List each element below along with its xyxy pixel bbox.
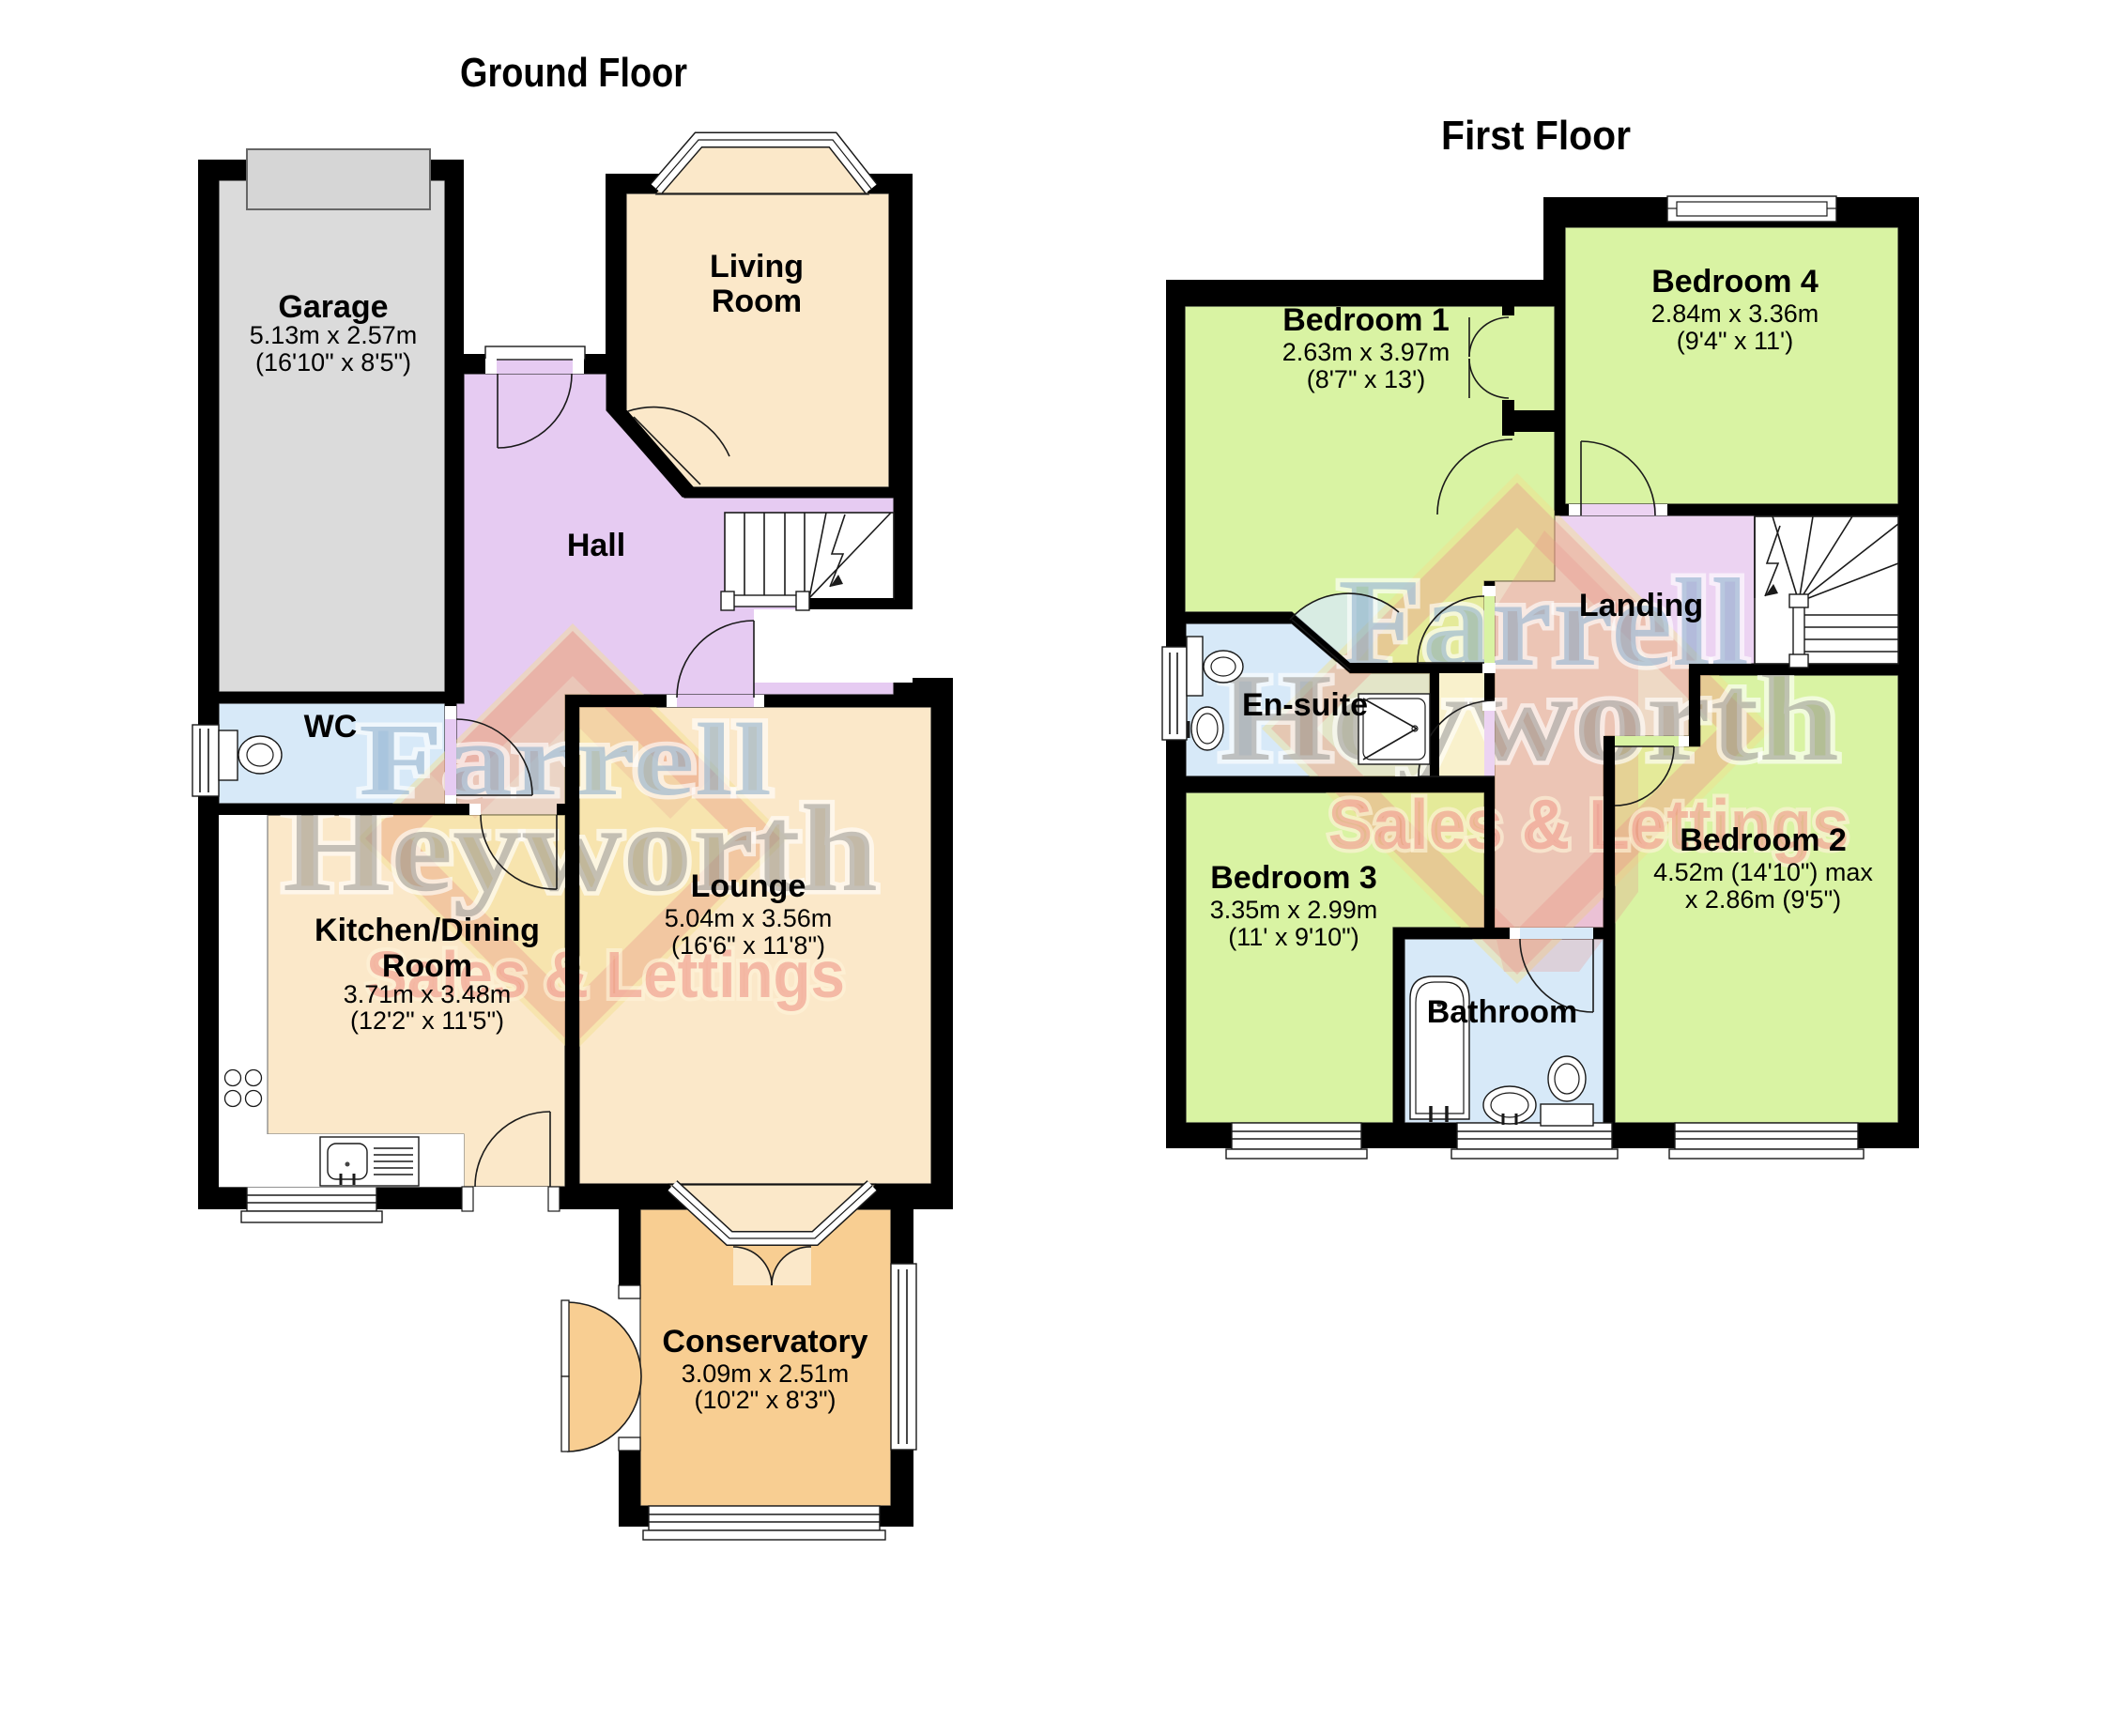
svg-text:En-suite: En-suite — [1242, 687, 1368, 723]
svg-text:Ground Floor: Ground Floor — [460, 50, 687, 96]
svg-text:3.71m x 3.48m: 3.71m x 3.48m — [344, 980, 512, 1008]
svg-text:x 2.86m (9'5"): x 2.86m (9'5") — [1685, 885, 1841, 914]
svg-text:(8'7" x 13'): (8'7" x 13') — [1307, 365, 1425, 393]
svg-text:Living: Living — [710, 249, 804, 284]
svg-text:Bedroom 4: Bedroom 4 — [1651, 264, 1819, 300]
svg-text:4.52m (14'10") max: 4.52m (14'10") max — [1653, 858, 1873, 886]
svg-text:Room: Room — [382, 948, 472, 984]
svg-text:Room: Room — [712, 284, 802, 319]
svg-text:Conservatory: Conservatory — [662, 1324, 867, 1360]
svg-text:Bedroom 1: Bedroom 1 — [1282, 302, 1450, 338]
svg-text:(10'2" x 8'3"): (10'2" x 8'3") — [694, 1386, 836, 1414]
svg-text:Bathroom: Bathroom — [1427, 994, 1578, 1030]
svg-text:3.35m x 2.99m: 3.35m x 2.99m — [1210, 896, 1378, 924]
svg-text:Landing: Landing — [1579, 588, 1703, 623]
svg-text:2.84m x 3.36m: 2.84m x 3.36m — [1651, 300, 1819, 328]
svg-text:First Floor: First Floor — [1441, 113, 1631, 159]
svg-text:Lounge: Lounge — [691, 868, 806, 904]
svg-text:Garage: Garage — [278, 289, 388, 325]
svg-text:5.13m x 2.57m: 5.13m x 2.57m — [250, 321, 418, 349]
svg-text:2.63m x 3.97m: 2.63m x 3.97m — [1282, 338, 1450, 366]
svg-text:(11' x 9'10"): (11' x 9'10") — [1228, 923, 1358, 951]
svg-text:3.09m x 2.51m: 3.09m x 2.51m — [682, 1360, 850, 1388]
svg-text:Hall: Hall — [567, 528, 625, 563]
svg-text:(16'10" x 8'5"): (16'10" x 8'5") — [255, 348, 411, 376]
svg-text:(9'4" x 11'): (9'4" x 11') — [1677, 327, 1793, 355]
svg-text:Kitchen/Dining: Kitchen/Dining — [315, 913, 540, 948]
svg-text:(16'6" x 11'8"): (16'6" x 11'8") — [671, 931, 825, 960]
svg-text:WC: WC — [304, 709, 358, 745]
svg-text:(12'2" x 11'5"): (12'2" x 11'5") — [350, 1006, 504, 1035]
svg-text:5.04m x 3.56m: 5.04m x 3.56m — [665, 904, 833, 932]
svg-text:Bedroom 3: Bedroom 3 — [1210, 860, 1377, 896]
svg-text:Bedroom 2: Bedroom 2 — [1680, 822, 1847, 858]
